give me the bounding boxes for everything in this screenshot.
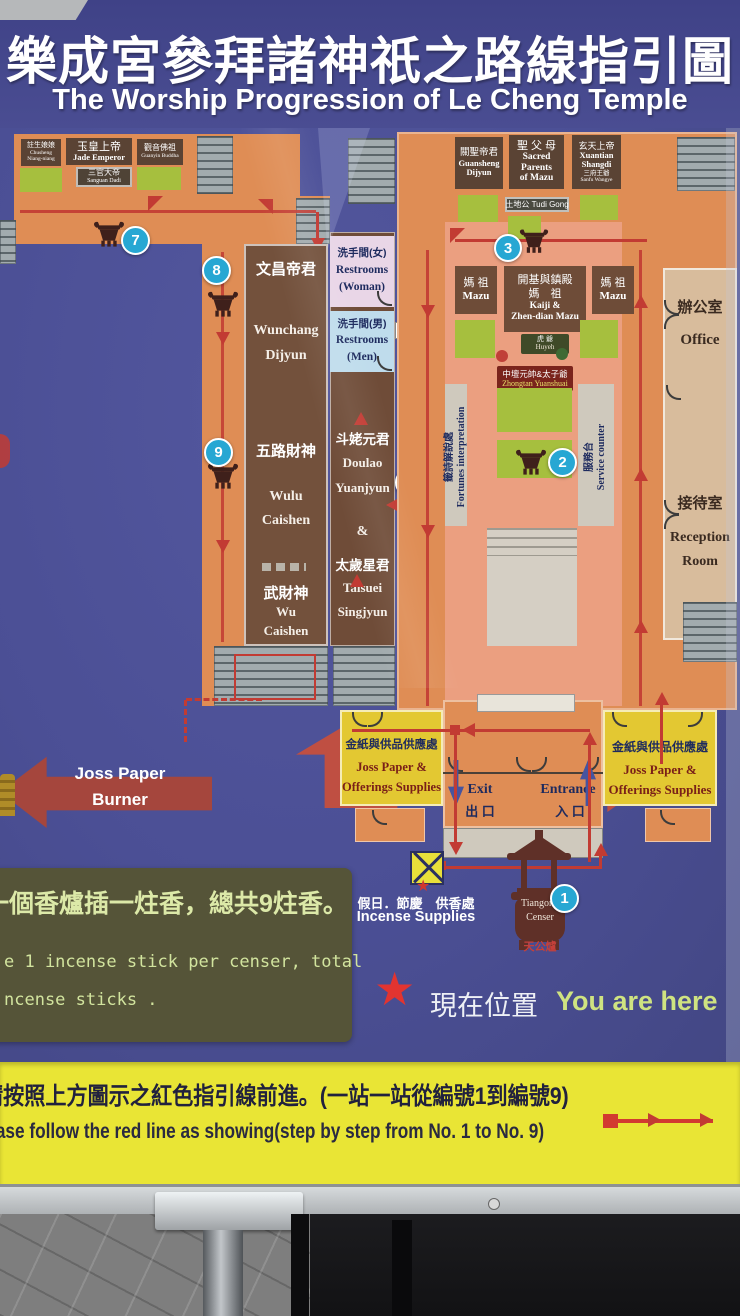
station-number: 1 [560, 890, 568, 907]
sign-title-en: The Worship Progression of Le Cheng Temp… [0, 84, 740, 117]
joss-supplies-label-en: Joss Paper & [603, 762, 717, 778]
red-dot [496, 350, 508, 362]
middle-stairs-bottom [333, 646, 395, 706]
zhongtan-label-en: Zhongtan Yuanshuai [502, 379, 568, 389]
restroom-label-zh: 洗手間(女) [338, 246, 387, 262]
route-dashed [184, 700, 187, 742]
inner-altar-green [497, 388, 572, 432]
joss-supplies-label-en: Offerings Supplies [338, 780, 445, 795]
deity-label-zh: 三官大帝 [88, 169, 120, 178]
hall-label-wunchang-en: Wunchang [244, 323, 328, 339]
hall-label-wulu-zh: 五路財神 [244, 440, 328, 461]
fortunes-label-en: Fortunes interpretation [456, 407, 468, 508]
frame-screw [488, 1198, 500, 1210]
route-arrow [634, 295, 648, 308]
sign-frame-bottom [0, 1184, 740, 1214]
service-label: 服務台 Service counter [579, 387, 613, 527]
doulao-label-en: Yuanjyun [330, 480, 395, 496]
joss-supplies-label-en: Joss Paper & [340, 760, 443, 775]
censer-icon [206, 288, 240, 318]
route-loop [234, 654, 316, 700]
service-label-en: Service counter [596, 424, 608, 490]
route-arrow [583, 732, 597, 745]
left-wing-corridor [14, 196, 330, 244]
deity-label-zh: 註生娘娘 [27, 142, 55, 150]
kaiji-mazu-box: 開基與鎮殿 媽 祖 Kaiji & Zhen-dian Mazu [504, 266, 586, 332]
you-are-here-en: You are here [556, 986, 726, 1017]
altar-green [580, 320, 618, 358]
dark-reflection-area [310, 1214, 740, 1316]
mazu-label-en: Mazu [463, 290, 490, 303]
route-arrow [634, 468, 648, 481]
ampersand-label: & [330, 524, 395, 540]
joss-supplies-label-en: Offerings Supplies [601, 782, 719, 798]
left-wing-stairs-top [197, 136, 233, 194]
hall-divider [262, 563, 306, 571]
wall-line [443, 772, 603, 774]
legend-route-square [603, 1114, 618, 1128]
tudi-gong-box: 土地公 Tudi Gong [505, 197, 569, 212]
route-arrow [421, 305, 435, 318]
tiangong-label-en: Censer [505, 912, 575, 923]
hall-label-wulu-en: Wulu [244, 489, 328, 505]
route-arrow [462, 723, 475, 737]
banner-text-en: Please follow the red line as showing(st… [0, 1120, 708, 1144]
deity-label-en: Sacred [523, 152, 551, 163]
joss-burner-label: Joss Paper [30, 764, 210, 784]
deity-box-jade-emperor: 玉皇上帝 Jade Emperor [66, 138, 132, 165]
station-number: 9 [214, 444, 222, 461]
hall-label-wu-zh: 武財神 [244, 582, 328, 603]
kaiji-label-en: Kaiji & [530, 301, 561, 312]
restroom-label-en: Restrooms [336, 332, 388, 349]
deity-label-en: Shangdi [582, 160, 612, 170]
altar-green [137, 167, 181, 190]
mazu-label-zh: 媽 祖 [600, 277, 625, 290]
mazu-box-right: 媽 祖 Mazu [592, 266, 634, 314]
station-3: 3 [494, 234, 522, 262]
green-dot [556, 348, 568, 360]
station-number: 3 [504, 240, 512, 257]
route-arrow [354, 412, 368, 425]
hall-label-wu-en: Wu [244, 604, 328, 620]
kaiji-label-zh: 媽 祖 [529, 288, 562, 301]
stand-leg [291, 1214, 309, 1316]
station-number: 2 [558, 454, 566, 471]
doulao-label-en: Doulao [330, 455, 395, 471]
incense-rule-en: e 1 incense stick per censer, total [4, 952, 364, 972]
route-line [588, 742, 591, 862]
incense-rule-zh: 一個香爐插一炷香，總共9炷香。 [0, 884, 384, 920]
taisuei-label-en: Singjyun [330, 604, 395, 620]
route-line [660, 702, 663, 764]
joss-burner-label: Burner [30, 790, 210, 810]
hall-label-wulu-en: Caishen [244, 513, 328, 529]
route-line [455, 239, 647, 242]
tiangong-label-zh: 天公爐 [505, 938, 575, 954]
exit-label-zh: 出 口 [456, 801, 504, 820]
route-arrow [258, 199, 273, 214]
annex-left [355, 808, 425, 842]
deity-label-zh: 觀音佛祖 [144, 144, 176, 153]
deity-label-en: of Mazu [520, 173, 554, 184]
sign-title-zh: 樂成宮參拜諸神祇之路線指引圖 [0, 20, 740, 94]
doulao-label-zh: 斗姥元君 [330, 428, 395, 448]
station-9: 9 [204, 438, 233, 467]
courtyard-platform [487, 528, 577, 646]
station-2: 2 [548, 448, 577, 477]
banner-text-zh: 請按照上方圖示之紅色指引線前進。(一站一站從編號1到編號9) [0, 1076, 686, 1111]
taisuei-label-zh: 太歲星君 [330, 554, 395, 574]
route-line [454, 732, 457, 844]
route-arrow [634, 620, 648, 633]
deity-box-guansheng: 關聖帝君 Guansheng Dijyun [455, 137, 503, 189]
legend-route-arrow [648, 1113, 661, 1127]
route-line [316, 212, 319, 240]
temple-guide-sign-photo: 樂成宮參拜諸神祇之路線指引圖 The Worship Progression o… [0, 0, 740, 1316]
route-fragment [0, 434, 10, 468]
deity-label-en: Jade Emperor [73, 153, 125, 163]
you-are-here-zh: 現在位置 [430, 984, 560, 1023]
mazu-box-left: 媽 祖 Mazu [455, 266, 497, 314]
route-line [426, 250, 429, 706]
deity-box-sanguan: 三官大帝 Sanguan Dadi [76, 167, 132, 187]
corridor-stairs-cut [0, 220, 16, 264]
route-arrow [450, 228, 465, 243]
hall-label-wunchang-zh: 文昌帝君 [244, 258, 328, 279]
sky-corner [0, 0, 88, 20]
restroom-label-en: Restrooms [336, 262, 388, 279]
route-dashed [186, 698, 262, 701]
censer-icon [514, 446, 548, 476]
deity-label-en: Niang-niang [27, 156, 55, 162]
restroom-label-zh: 洗手間(男) [338, 317, 387, 332]
censer-icon [518, 226, 550, 254]
station-7: 7 [121, 226, 150, 255]
route-arrow [350, 574, 364, 587]
instruction-banner: 請按照上方圖示之紅色指引線前進。(一站一站從編號1到編號9) Please fo… [0, 1062, 740, 1186]
kaiji-label-en: Zhen-dian Mazu [511, 312, 579, 323]
route-arrow [216, 540, 230, 553]
stand-pole [203, 1230, 243, 1316]
restroom-label-en: (Men) [347, 349, 377, 366]
station-number: 7 [131, 232, 139, 249]
deity-label-en: Guanyin Buddha [141, 153, 178, 159]
deity-box-chusheng: 註生娘娘 Chusheng Niang-niang [21, 139, 61, 166]
altar-green [580, 195, 618, 220]
route-arrow [421, 525, 435, 538]
fortunes-label-zh: 籤詩解說處 [444, 432, 456, 482]
joss-burner-icon [0, 774, 15, 816]
stand-leg [392, 1220, 412, 1316]
deity-box-xuantian: 玄天上帝 Xuantian Shangdi 三府王爺 Sanfu Wangye [572, 135, 621, 189]
deity-label-en: Parents [521, 163, 552, 174]
mazu-label-en: Mazu [600, 290, 627, 303]
you-are-here-star-icon: ★ [374, 962, 415, 1016]
route-arrow [655, 692, 669, 705]
route-arrow [449, 842, 463, 855]
deity-label-en: Sanguan Dadi [87, 178, 121, 185]
legend-route-arrow [700, 1113, 713, 1127]
altar-green [455, 320, 495, 358]
deity-box-guanyin: 觀音佛祖 Guanyin Buddha [137, 139, 183, 165]
deity-label-zh: 聖 父 母 [517, 140, 556, 152]
huyeh-label-en: Huyeh [536, 344, 555, 352]
kaiji-label-zh: 開基與鎮殿 [518, 274, 573, 287]
incense-rule-en: ncense sticks . [4, 990, 224, 1010]
mazu-label-zh: 媽 祖 [463, 277, 488, 290]
hall-label-wu-en: Caishen [244, 623, 328, 639]
route-arrow [594, 843, 608, 856]
deity-label-en2: Sanfu Wangye [581, 177, 613, 183]
joss-supplies-label-zh: 金紙與供品供應處 [340, 736, 443, 752]
legend-route-line [617, 1119, 713, 1123]
altar-green [458, 195, 498, 222]
route-arrow [216, 332, 230, 345]
tudi-gong-label: 土地公 Tudi Gong [505, 199, 568, 210]
altar-table [477, 694, 575, 712]
service-label-zh: 服務台 [584, 442, 596, 472]
station-8: 8 [202, 256, 231, 285]
deity-label-en: Dijyun [466, 168, 491, 178]
station-number: 8 [212, 262, 220, 279]
fortunes-label: 籤詩解說處 Fortunes interpretation [439, 387, 473, 527]
annex-right [645, 808, 711, 842]
hall-label-wunchang-en: Dijyun [244, 348, 328, 364]
route-arrow [148, 196, 163, 211]
frame-bracket [155, 1192, 303, 1230]
deity-box-sacred-parents: 聖 父 母 Sacred Parents of Mazu [509, 135, 564, 189]
altar-green [20, 168, 62, 192]
exit-label-en: Exit [458, 782, 502, 798]
station-1: 1 [550, 884, 579, 913]
zhongtan-label-zh: 中壇元帥&太子爺 [502, 369, 567, 379]
glass-glare [726, 128, 740, 1062]
